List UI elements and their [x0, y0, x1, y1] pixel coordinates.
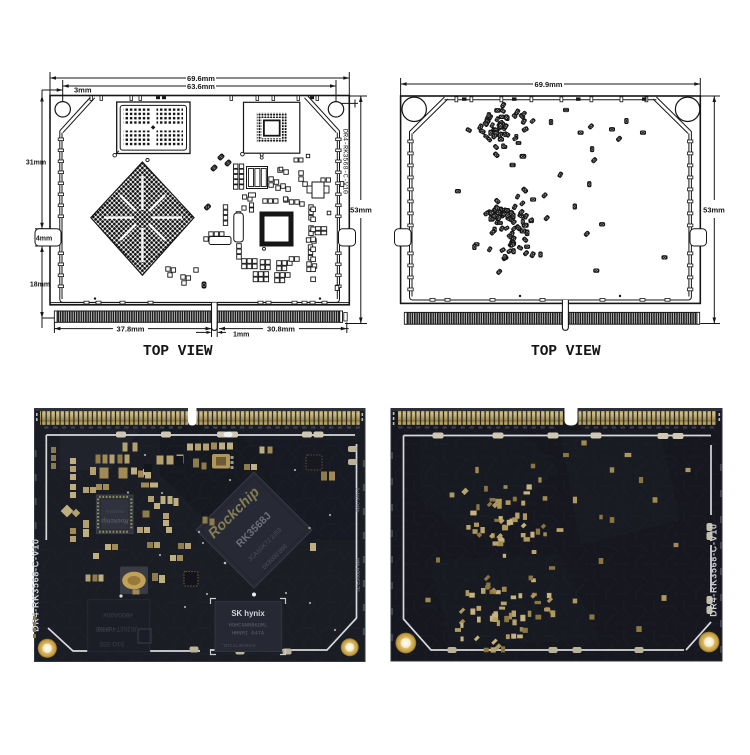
- svg-text:30.8mm: 30.8mm: [267, 324, 295, 333]
- svg-text:TOP VIEW: TOP VIEW: [531, 344, 601, 360]
- svg-text:Rockchip: Rockchip: [101, 517, 128, 523]
- svg-text:37.8mm: 37.8mm: [117, 324, 145, 333]
- svg-text:#800A00#: #800A00#: [103, 611, 133, 618]
- svg-text:31mm: 31mm: [26, 160, 46, 167]
- svg-text:69.9mm: 69.9mm: [535, 80, 563, 89]
- svg-text:1mm: 1mm: [233, 331, 249, 338]
- svg-text:H9HCNNNBKUML: H9HCNNNBKUML: [229, 623, 268, 629]
- svg-text:JZ E30684 WA: JZ E30684 WA: [356, 558, 362, 592]
- svg-text:RK809-5: RK809-5: [106, 509, 124, 514]
- svg-text:18mm: 18mm: [30, 282, 50, 289]
- svg-text:0H0B: 0H0B: [95, 625, 110, 631]
- svg-text:4mm: 4mm: [36, 236, 52, 243]
- svg-text:4W8 94V-0: 4W8 94V-0: [356, 487, 362, 512]
- svg-text:3mm: 3mm: [74, 86, 92, 95]
- svg-text:53mm: 53mm: [703, 206, 725, 215]
- svg-text:53mm: 53mm: [350, 206, 372, 215]
- svg-text:SK hynix: SK hynix: [231, 609, 265, 618]
- svg-text:63.6mm: 63.6mm: [187, 82, 215, 91]
- svg-text:TOP VIEW: TOP VIEW: [143, 344, 213, 360]
- svg-text:HRNMI 047A: HRNMI 047A: [232, 631, 265, 637]
- svg-text:*NTC4L363HA3: *NTC4L363HA3: [221, 643, 256, 649]
- svg-text:S1G 0S5: S1G 0S5: [99, 640, 124, 646]
- svg-text:DR4-RK3568-C-V10: DR4-RK3568-C-V10: [341, 129, 349, 194]
- svg-text:DR4-RK3568-C-V10: DR4-RK3568-C-V10: [709, 523, 719, 616]
